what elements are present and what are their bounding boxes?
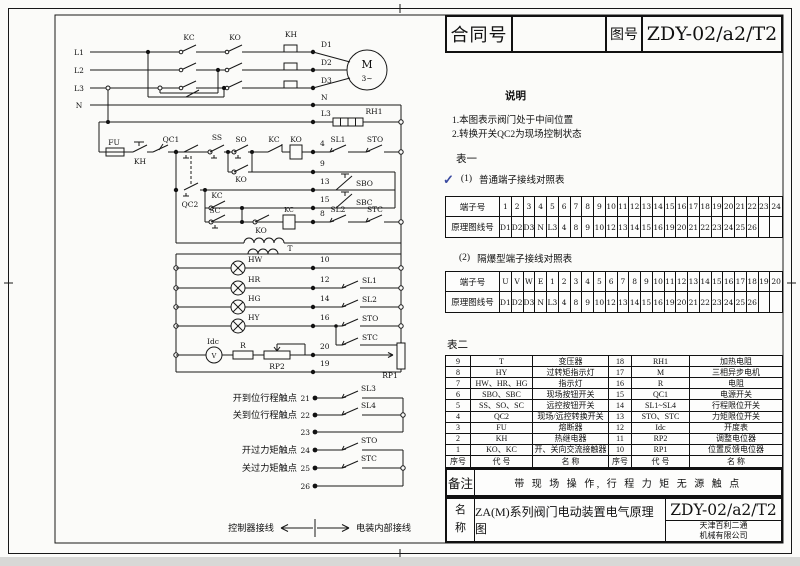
terminal-cell: 9	[594, 197, 606, 217]
remark-text: 带 现 场 操 作, 行 程 力 矩 无 源 触 点	[475, 470, 781, 495]
component-cell: 现场按钮开关	[533, 389, 609, 400]
ko-coil	[290, 145, 302, 159]
terminal-cell: 26	[747, 217, 759, 237]
terminal-cell: 5	[547, 197, 559, 217]
terminal-cell: N	[535, 292, 547, 312]
phase-label: L1	[74, 48, 84, 57]
check-mark-icon: ✓	[443, 173, 454, 186]
terminal-cell: 22	[700, 217, 712, 237]
drawing-no-bottom: ZDY-02/a2/T2	[666, 499, 781, 521]
terminal-cell: 16	[653, 292, 665, 312]
component-cell: 序号	[446, 456, 471, 467]
sub1-no: (1)	[461, 174, 472, 184]
contactor-label: KO	[229, 33, 241, 42]
component-cell: 代 号	[632, 456, 690, 467]
lamp-row-remote: HG 14 SL2	[174, 294, 403, 314]
potentiometer-rp2	[264, 351, 290, 359]
terminal-number: 8	[320, 209, 325, 218]
terminal-cell: 25	[735, 217, 747, 237]
terminal-number: 22	[300, 411, 310, 420]
limit-switch-label: SL1	[362, 276, 377, 285]
component-cell: 熔断器	[533, 423, 609, 434]
terminal-cell: 21	[688, 217, 700, 237]
component-cell: RP1	[632, 445, 690, 456]
lamp-row-open: HW 10	[174, 255, 403, 275]
terminal-cell: 13	[688, 272, 700, 292]
component-cell: 代 号	[471, 456, 533, 467]
terminal-cell: 10	[653, 272, 665, 292]
component-cell: 10	[609, 445, 632, 456]
terminal-cell: 15	[641, 292, 653, 312]
control-section: FU KH QC1 SS SO KC KO 4 SL1 STO	[99, 133, 403, 243]
component-cell: 1	[446, 445, 471, 456]
terminal-cell	[770, 292, 782, 312]
terminal-cell: 4	[582, 272, 594, 292]
component-cell: 7	[446, 378, 471, 389]
terminal-cell: 21	[735, 197, 747, 217]
component-cell: 远控按钮开关	[533, 400, 609, 411]
meter-label: Idc	[207, 337, 219, 346]
terminal-cell: D1	[500, 217, 512, 237]
component-cell: 电源开关	[690, 389, 782, 400]
name-row: 名称 ZA(M)系列阀门电动装置电气原理图 ZDY-02/a2/T2 天津百利二…	[445, 497, 783, 543]
terminal-cell: 14	[629, 217, 641, 237]
lamp-label: HY	[248, 313, 261, 322]
wiring-boundary-legend: 控制器接线 电装内部接线	[228, 519, 411, 537]
terminal-cell: 3	[571, 272, 583, 292]
phase-label: L3	[74, 84, 84, 93]
terminal-cell: N	[535, 217, 547, 237]
terminal-cell: 10	[606, 197, 618, 217]
interlock-label: KO	[255, 226, 267, 235]
torque-switch-label: STO	[367, 135, 383, 144]
component-cell: 名 称	[690, 456, 782, 467]
component-cell: 过转矩指示灯	[533, 367, 609, 378]
component-cell: SBO、SBC	[471, 389, 533, 400]
terminal-number: 20	[320, 342, 330, 351]
terminal-number: 19	[320, 359, 330, 368]
component-cell: 16	[609, 378, 632, 389]
terminal-cell: 12	[606, 217, 618, 237]
meter-letter: V	[211, 352, 217, 360]
component-cell: 17	[609, 367, 632, 378]
terminal-cell: U	[500, 272, 512, 292]
component-cell: 序号	[609, 456, 632, 467]
interlock-label: KC	[268, 135, 279, 144]
table2-title: 表二	[447, 337, 468, 352]
component-cell: 18	[609, 356, 632, 367]
terminal-cell: 8	[571, 292, 583, 312]
contract-label: 合同号	[447, 17, 513, 51]
terminal-cell: 4	[559, 292, 571, 312]
terminal-cell: 20	[676, 217, 688, 237]
terminal-cell: 9	[641, 272, 653, 292]
terminal-cell: 23	[712, 217, 724, 237]
component-cell: 9	[446, 356, 471, 367]
legend-left: 控制器接线	[228, 522, 274, 533]
terminal-cell: 13	[641, 197, 653, 217]
row-label: 端子号	[446, 272, 500, 292]
terminal-cell: 23	[712, 292, 724, 312]
terminal-cell: D2	[512, 292, 524, 312]
note-item: 2.转换开关QC2为现场控制状态	[452, 126, 582, 140]
terminal-number: 16	[320, 313, 330, 322]
remark-label: 备注	[447, 470, 475, 495]
component-cell: RP2	[632, 434, 690, 445]
drawing-id-block: ZDY-02/a2/T2 天津百利二通 机械有限公司	[666, 499, 781, 541]
local-open-button-label: SBO	[356, 179, 373, 188]
transformer-label: T	[287, 244, 292, 253]
drawing-no-value: ZDY-02/a2/T2	[643, 17, 781, 51]
component-cell: 指示灯	[533, 378, 609, 389]
terminal-number: 4	[320, 139, 325, 148]
terminal-cell: 10	[594, 292, 606, 312]
lamp-label: HG	[248, 294, 261, 303]
fuse-label: FU	[108, 138, 120, 147]
terminal-cell: D3	[524, 292, 536, 312]
component-cell: 位置反馈电位器	[690, 445, 782, 456]
component-cell: 11	[609, 434, 632, 445]
feedback-pot-label: RP1	[382, 371, 397, 380]
component-cell: R	[632, 378, 690, 389]
terminal-cell: L3	[547, 292, 559, 312]
component-table: 9T变压器18RH1加热电阻8HY过转矩指示灯17M三相异步电机7HW、HR、H…	[445, 355, 783, 468]
terminal-cell: 4	[559, 217, 571, 237]
row-label: 原理图线号	[446, 292, 500, 312]
terminal-cell: 14	[653, 197, 665, 217]
terminal-cell: 24	[723, 217, 735, 237]
component-cell: SL1~SL4	[632, 400, 690, 411]
note-item: 1.本图表示阀门处于中间位置	[452, 112, 573, 126]
terminal-cell: 12	[629, 197, 641, 217]
terminal-cell: 19	[665, 292, 677, 312]
torque-switch-label: STC	[361, 454, 377, 463]
terminal-cell: D3	[524, 217, 536, 237]
engineering-drawing-page: L1 L2 L3 N KC KO KH D1	[0, 0, 800, 566]
terminal-cell: D2	[512, 217, 524, 237]
component-cell: 三相异步电机	[690, 367, 782, 378]
indication-section: HW 10 HR 12 SL1 HG 14 SL2	[174, 254, 405, 380]
component-cell: 2	[446, 434, 471, 445]
feedback-pot-rp1	[397, 343, 405, 369]
terminal-cell: V	[512, 272, 524, 292]
limit-switch-label: SL4	[361, 401, 376, 410]
row-label: 端子号	[446, 197, 500, 217]
terminal-cell: 12	[676, 272, 688, 292]
terminal-number: 12	[320, 275, 330, 284]
table1-title: 表一	[456, 151, 477, 166]
sub1-text: 普通端子接线对照表	[479, 172, 565, 186]
lamp-row-close: HR 12 SL1	[174, 275, 403, 295]
terminal-cell: 20	[723, 197, 735, 217]
terminal-cell: 19	[665, 217, 677, 237]
power-switch-label: QC1	[163, 135, 180, 144]
terminal-cell	[759, 217, 771, 237]
component-cell: FU	[471, 423, 533, 434]
terminal-cell	[770, 217, 782, 237]
terminal-cell: 6	[559, 197, 571, 217]
legend-right: 电装内部接线	[356, 522, 411, 533]
component-cell: 15	[609, 389, 632, 400]
contact-caption: 关过力矩触点	[242, 462, 297, 473]
terminal-number: 23	[300, 428, 310, 437]
terminal-cell: W	[524, 272, 536, 292]
neutral-label: N	[76, 101, 83, 110]
output-contacts-section: 开到位行程触点 关到位行程触点 开过力矩触点 关过力矩触点 21 22 23 2…	[233, 384, 406, 491]
component-cell: 名 称	[533, 456, 609, 467]
terminal-cell: 23	[759, 197, 771, 217]
component-cell: 变压器	[533, 356, 609, 367]
aux-contact-label: KO	[235, 175, 247, 184]
component-cell: QC2	[471, 412, 533, 423]
terminal-cell: 7	[571, 197, 583, 217]
table1-sub1: ✓ (1) 普通端子接线对照表	[443, 172, 565, 186]
component-cell: 12	[609, 423, 632, 434]
component-cell: HW、HR、HG	[471, 378, 533, 389]
kc-coil	[283, 215, 295, 229]
terminal-cell: 10	[594, 217, 606, 237]
component-cell: 3	[446, 423, 471, 434]
terminal-cell: 17	[688, 197, 700, 217]
transformer-symbol: T	[176, 238, 401, 254]
lamp-label: HW	[248, 255, 263, 264]
contract-value	[513, 17, 607, 51]
component-cell: 6	[446, 389, 471, 400]
terminal-cell: 24	[723, 292, 735, 312]
terminal-cell: 18	[747, 272, 759, 292]
terminal-cell: 26	[747, 292, 759, 312]
phase-label: L2	[74, 66, 84, 75]
terminal-label: N	[321, 93, 328, 102]
limit-switch-label: SL2	[331, 205, 346, 214]
terminal-cell: 1	[500, 197, 512, 217]
contactor-label: KC	[183, 33, 194, 42]
open-button-label: SO	[235, 135, 246, 144]
terminal-number: 26	[300, 482, 310, 491]
row-label: 原理图线号	[446, 217, 500, 237]
thermal-contact-label: KH	[134, 157, 147, 166]
phase-crossover-wiring	[146, 50, 226, 97]
terminal-cell: 7	[618, 272, 630, 292]
heater-label: RH1	[366, 107, 383, 116]
torque-switch-label: STC	[367, 205, 383, 214]
component-cell: 开度表	[690, 423, 782, 434]
terminal-label: D2	[321, 58, 332, 67]
terminal-cell: 6	[606, 272, 618, 292]
terminal-cell: 8	[571, 217, 583, 237]
component-cell: 5	[446, 400, 471, 411]
notes-title: 说明	[505, 88, 526, 103]
component-cell: 开、关向交流接触器	[533, 445, 609, 456]
drawing-title: ZA(M)系列阀门电动装置电气原理图	[475, 499, 666, 541]
terminal-number: 24	[300, 446, 310, 455]
torque-switch-label: STO	[362, 314, 378, 323]
limit-switch-label: SL1	[331, 135, 346, 144]
resistor-label: R	[240, 341, 246, 350]
close-button-label: SC	[210, 206, 221, 215]
terminal-cell: 1	[547, 272, 559, 292]
terminal-cell: L3	[547, 217, 559, 237]
terminal-cell: 8	[629, 272, 641, 292]
terminal-cell: 2	[512, 197, 524, 217]
terminal-cell: 19	[712, 197, 724, 217]
terminal-cell: 9	[582, 217, 594, 237]
component-cell: Idc	[632, 423, 690, 434]
component-cell: SS、SO、SC	[471, 400, 533, 411]
company-name: 天津百利二通 机械有限公司	[666, 521, 781, 541]
component-cell: 8	[446, 367, 471, 378]
limit-switch-label: SL2	[362, 295, 377, 304]
contact-caption: 关到位行程触点	[233, 409, 297, 420]
component-cell: STO、STC	[632, 412, 690, 423]
component-cell: 热继电器	[533, 434, 609, 445]
stop-button-label: SS	[212, 133, 222, 142]
contact-caption: 开到位行程触点	[233, 392, 297, 403]
terminal-cell: 16	[676, 197, 688, 217]
terminal-label: D1	[321, 40, 332, 49]
selector-switch-label: QC2	[182, 200, 199, 209]
terminal-cell: 16	[653, 217, 665, 237]
terminal-number: 15	[320, 195, 330, 204]
terminal-cell: 13	[618, 292, 630, 312]
contact-caption: 开过力矩触点	[242, 444, 297, 455]
component-cell: T	[471, 356, 533, 367]
terminal-cell: 4	[535, 197, 547, 217]
torque-switch-label: STC	[362, 333, 378, 342]
terminal-cell: 3	[524, 197, 536, 217]
terminal-cell: 15	[712, 272, 724, 292]
component-cell: 13	[609, 412, 632, 423]
remark-row: 备注 带 现 场 操 作, 行 程 力 矩 无 源 触 点	[445, 468, 783, 497]
heater-resistor-rh1	[333, 118, 363, 126]
terminal-cell: 12	[606, 292, 618, 312]
drawing-no-label: 图号	[607, 17, 643, 51]
coil-label: KO	[290, 135, 302, 144]
terminal-number: 14	[320, 294, 330, 303]
terminal-cell: 20	[770, 272, 782, 292]
component-cell: KH	[471, 434, 533, 445]
coil-label: KC	[284, 206, 294, 214]
terminal-cell: 5	[594, 272, 606, 292]
terminal-cell: D1	[500, 292, 512, 312]
aux-contact-label: KC	[211, 191, 222, 200]
terminal-cell: 13	[618, 217, 630, 237]
component-cell: 4	[446, 412, 471, 423]
screen-bottom-band	[0, 557, 800, 566]
terminal-cell: 11	[665, 272, 677, 292]
component-cell: 14	[609, 400, 632, 411]
terminal-cell: 15	[641, 217, 653, 237]
terminal-number: 13	[320, 177, 330, 186]
component-cell: 电阻	[690, 378, 782, 389]
potentiometer-label: RP2	[269, 362, 285, 371]
terminal-cell: 18	[700, 197, 712, 217]
terminal-number: 10	[320, 255, 330, 264]
terminal-number: 9	[320, 159, 325, 168]
terminal-cell: 2	[559, 272, 571, 292]
terminal-cell: 16	[723, 272, 735, 292]
terminal-number: 21	[300, 394, 310, 403]
component-cell: HY	[471, 367, 533, 378]
terminal-cell: 17	[735, 272, 747, 292]
component-cell: 力矩限位开关	[690, 412, 782, 423]
terminal-cell	[759, 292, 771, 312]
sub2-no: (2)	[459, 253, 470, 263]
terminal-number: 25	[300, 464, 310, 473]
torque-switch-label: STO	[361, 436, 377, 445]
terminal-cell: E	[535, 272, 547, 292]
component-cell: 调整电位器	[690, 434, 782, 445]
motor-phase: 3~	[361, 74, 372, 83]
terminal-label: L3	[321, 109, 331, 118]
terminal-cell: 14	[629, 292, 641, 312]
terminal-cell: 9	[582, 292, 594, 312]
component-cell: 现场/远控转换开关	[533, 412, 609, 423]
component-cell: RH1	[632, 356, 690, 367]
terminal-cell: 15	[665, 197, 677, 217]
title-header: 合同号 图号 ZDY-02/a2/T2	[445, 15, 783, 53]
terminal-cell: 14	[700, 272, 712, 292]
explosion-proof-terminal-table: 端子号UVWE1234567891011121314151617181920原理…	[445, 271, 783, 313]
terminal-cell: 22	[700, 292, 712, 312]
sub2-text: 隔爆型端子接线对照表	[477, 251, 572, 265]
component-cell: M	[632, 367, 690, 378]
terminal-cell: 21	[688, 292, 700, 312]
component-cell: QC1	[632, 389, 690, 400]
position-meter-row: V Idc R RP2 20 RP1 19	[174, 337, 405, 380]
ordinary-terminal-table: 端子号1234567891011121314151617181920212223…	[445, 196, 783, 238]
terminal-cell: 24	[770, 197, 782, 217]
resistor-r	[233, 351, 253, 359]
terminal-cell: 19	[759, 272, 771, 292]
terminal-cell: 25	[735, 292, 747, 312]
terminal-cell: 22	[747, 197, 759, 217]
lamp-label: HR	[248, 275, 261, 284]
terminal-cell: 8	[582, 197, 594, 217]
component-cell: KO、KC	[471, 445, 533, 456]
thermal-relay-label: KH	[285, 30, 298, 39]
motor-letter: M	[361, 58, 372, 71]
table1-sub2: (2) 隔爆型端子接线对照表	[459, 251, 572, 265]
terminal-cell: 20	[676, 292, 688, 312]
component-cell: 行程限位开关	[690, 400, 782, 411]
name-label: 名称	[447, 499, 475, 541]
component-cell: 加热电阻	[690, 356, 782, 367]
limit-switch-label: SL3	[361, 384, 376, 393]
terminal-cell: 11	[618, 197, 630, 217]
